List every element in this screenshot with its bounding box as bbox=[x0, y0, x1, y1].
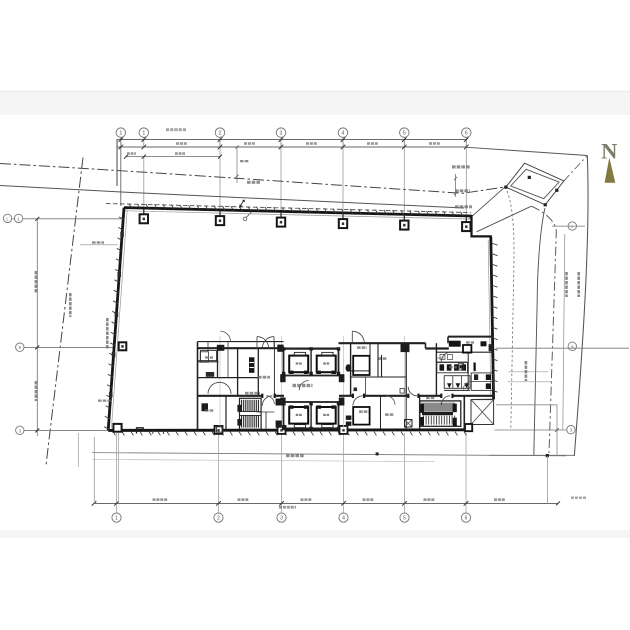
svg-text:4: 4 bbox=[342, 516, 345, 522]
svg-text:6: 6 bbox=[465, 516, 468, 522]
svg-text:4: 4 bbox=[342, 131, 345, 137]
svg-text:6: 6 bbox=[465, 131, 468, 137]
svg-text:1: 1 bbox=[142, 131, 145, 137]
svg-text:5: 5 bbox=[403, 516, 406, 522]
svg-text:1: 1 bbox=[119, 131, 122, 137]
svg-text:1: 1 bbox=[115, 516, 118, 522]
svg-text:5: 5 bbox=[403, 131, 406, 137]
svg-text:3: 3 bbox=[280, 516, 283, 522]
svg-text:3: 3 bbox=[280, 131, 283, 137]
svg-text:2: 2 bbox=[219, 131, 222, 137]
svg-text:2: 2 bbox=[217, 516, 220, 522]
